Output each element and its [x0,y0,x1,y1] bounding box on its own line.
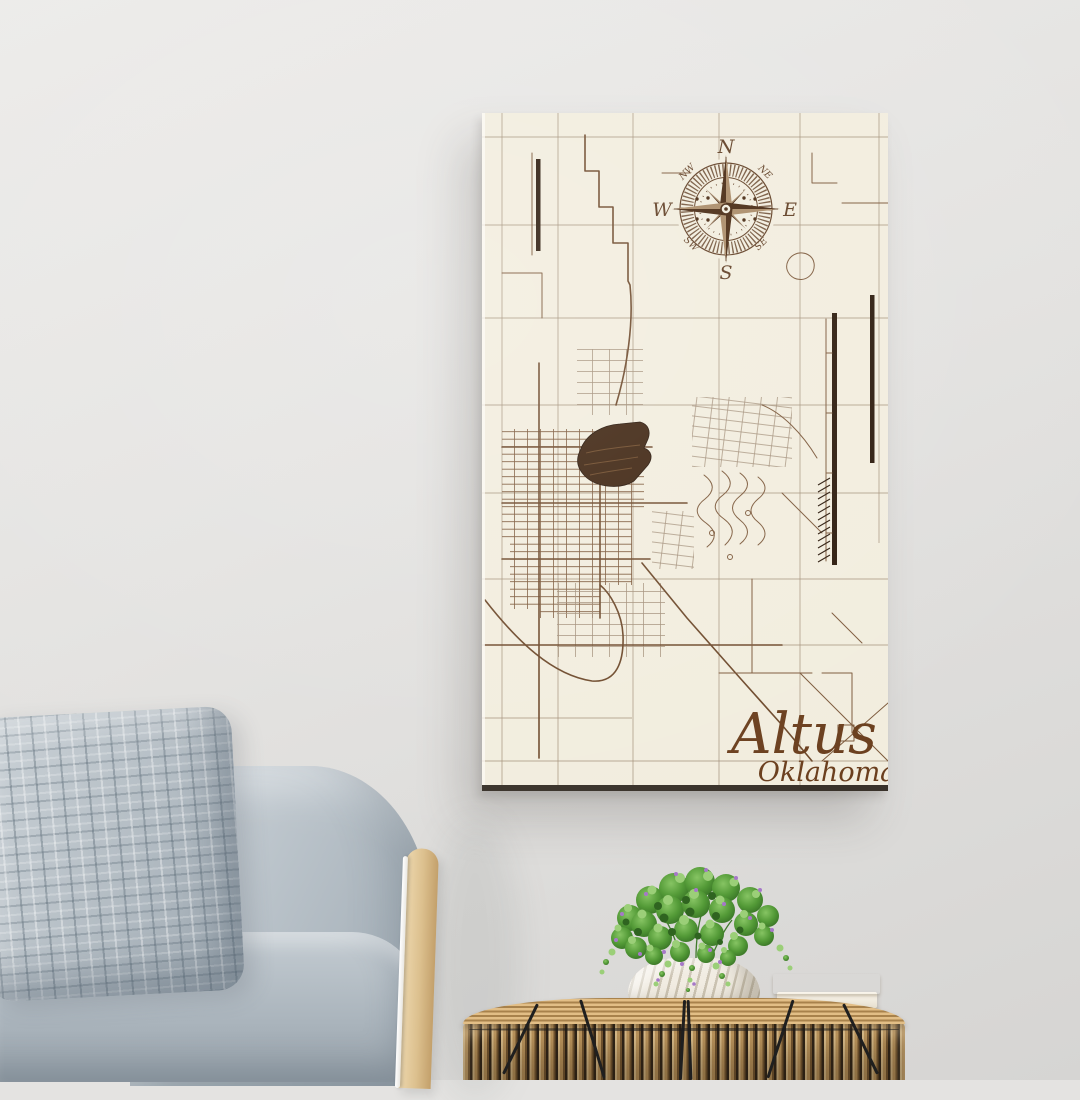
sofa [0,700,470,1080]
compass-label-n: N [717,136,736,158]
panel-left-edge [482,113,485,791]
compass-label-s: S [719,262,732,284]
knit-throw-pillow [0,705,245,1002]
compass-label-w: W [652,199,673,221]
map-subtitle: Oklahoma [758,757,888,788]
panel-bottom-edge [482,785,888,791]
sofa-wall-shadow [430,820,520,1100]
street-map: N E S W NW NE SW SE Altus Oklahoma [482,113,888,791]
compass-label-e: E [782,199,797,221]
map-wall-art: N E S W NW NE SW SE Altus Oklahoma [482,113,888,791]
room-scene: N E S W NW NE SW SE Altus Oklahoma [0,0,1080,1080]
